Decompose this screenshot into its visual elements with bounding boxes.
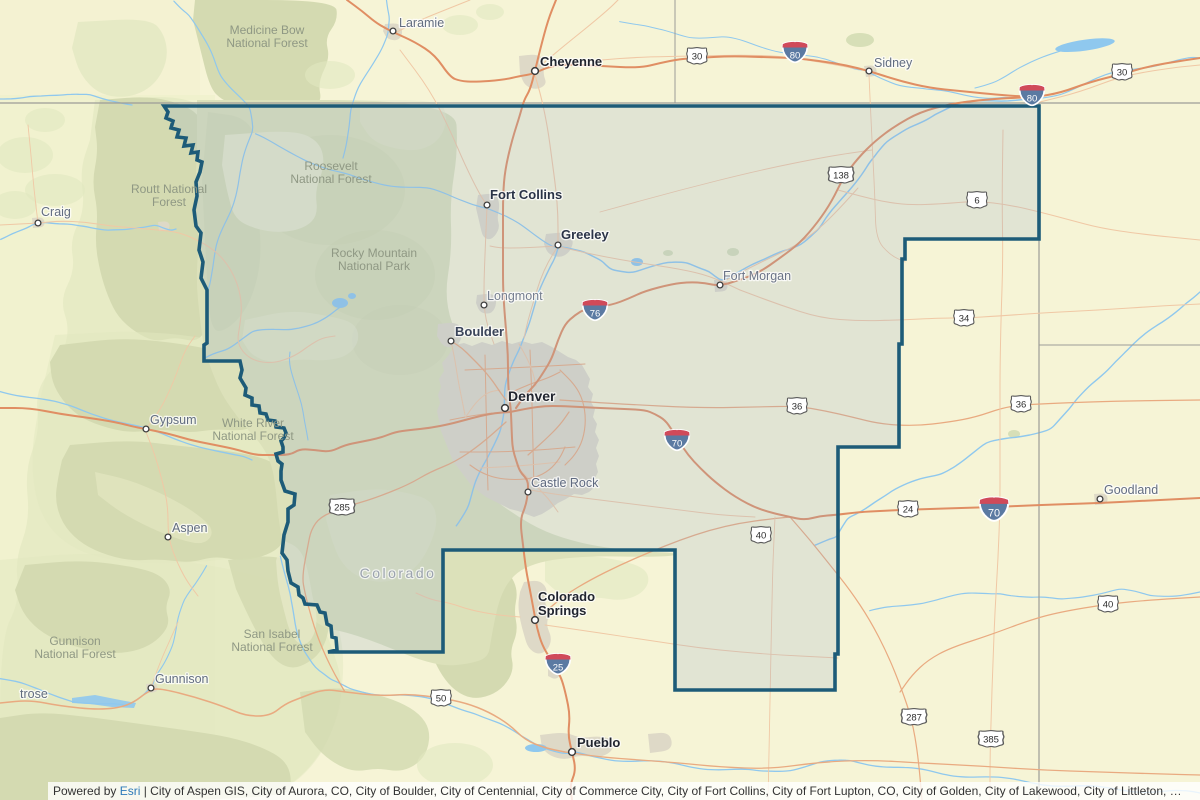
- svg-text:40: 40: [756, 531, 767, 542]
- svg-text:Boulder: Boulder: [455, 324, 504, 339]
- svg-text:285: 285: [334, 503, 350, 514]
- svg-text:Fort Morgan: Fort Morgan: [723, 269, 791, 283]
- svg-text:Denver: Denver: [508, 388, 556, 404]
- svg-text:30: 30: [692, 52, 703, 63]
- svg-text:Gypsum: Gypsum: [150, 413, 197, 427]
- svg-text:Longmont: Longmont: [487, 289, 543, 303]
- svg-text:Fort Collins: Fort Collins: [490, 187, 562, 202]
- svg-text:trose: trose: [20, 687, 48, 701]
- svg-text:30: 30: [1117, 68, 1128, 79]
- svg-text:25: 25: [553, 662, 564, 673]
- svg-text:70: 70: [672, 438, 683, 449]
- svg-text:287: 287: [906, 713, 922, 724]
- svg-text:Sidney: Sidney: [874, 56, 913, 70]
- svg-text:Goodland: Goodland: [1104, 483, 1158, 497]
- svg-text:Colorado: Colorado: [360, 565, 437, 581]
- svg-text:80: 80: [1027, 93, 1038, 104]
- svg-text:Pueblo: Pueblo: [577, 735, 620, 750]
- svg-text:70: 70: [988, 507, 1000, 519]
- svg-text:24: 24: [903, 505, 914, 516]
- svg-text:36: 36: [1016, 400, 1027, 411]
- svg-text:40: 40: [1103, 600, 1114, 611]
- svg-text:Cheyenne: Cheyenne: [540, 54, 602, 69]
- svg-text:138: 138: [833, 171, 849, 182]
- svg-text:Gunnison: Gunnison: [155, 672, 209, 686]
- svg-text:6: 6: [974, 196, 979, 207]
- svg-text:76: 76: [590, 308, 601, 319]
- svg-text:Rocky MountainNational Park: Rocky MountainNational Park: [331, 246, 417, 273]
- svg-text:Craig: Craig: [41, 205, 71, 219]
- svg-text:80: 80: [790, 50, 801, 61]
- svg-text:Laramie: Laramie: [399, 16, 444, 30]
- svg-text:Greeley: Greeley: [561, 227, 609, 242]
- svg-text:Castle Rock: Castle Rock: [531, 476, 599, 490]
- svg-text:385: 385: [983, 735, 999, 746]
- svg-text:Medicine BowNational Forest: Medicine BowNational Forest: [226, 23, 308, 50]
- svg-text:50: 50: [436, 694, 447, 705]
- svg-text:34: 34: [959, 314, 970, 325]
- svg-text:White RiverNational Forest: White RiverNational Forest: [212, 416, 294, 443]
- svg-text:36: 36: [792, 402, 803, 413]
- svg-text:Aspen: Aspen: [172, 521, 207, 535]
